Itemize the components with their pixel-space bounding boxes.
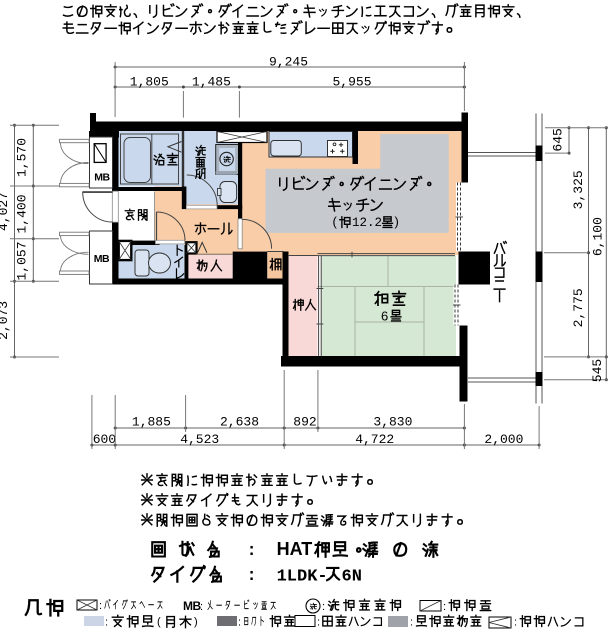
svg-text:1,057: 1,057 bbox=[15, 241, 30, 280]
svg-text:1,485: 1,485 bbox=[192, 75, 231, 90]
svg-text:12.2: 12.2 bbox=[352, 216, 382, 230]
svg-text::: : bbox=[317, 617, 320, 629]
svg-text:4,027: 4,027 bbox=[0, 192, 11, 231]
svg-text::: : bbox=[247, 542, 257, 561]
svg-text:6N: 6N bbox=[342, 568, 362, 587]
svg-text:1,885: 1,885 bbox=[132, 415, 171, 430]
svg-text:2,073: 2,073 bbox=[0, 301, 11, 340]
svg-text::: : bbox=[410, 617, 413, 629]
svg-text:645: 645 bbox=[551, 128, 566, 151]
svg-text::: : bbox=[247, 567, 257, 586]
svg-text:4,523: 4,523 bbox=[180, 432, 219, 447]
svg-text:1,400: 1,400 bbox=[15, 194, 30, 233]
svg-text:MB: MB bbox=[94, 253, 110, 265]
svg-text:5,955: 5,955 bbox=[332, 75, 371, 90]
svg-text:6: 6 bbox=[381, 309, 388, 324]
svg-text:4,722: 4,722 bbox=[355, 432, 394, 447]
svg-text:600: 600 bbox=[93, 432, 116, 447]
svg-text:3,325: 3,325 bbox=[571, 170, 586, 209]
svg-text:6,100: 6,100 bbox=[591, 217, 606, 256]
svg-text:2,638: 2,638 bbox=[220, 415, 259, 430]
svg-text:MB: MB bbox=[183, 599, 201, 613]
svg-text::: : bbox=[322, 601, 325, 613]
svg-text:HAT: HAT bbox=[277, 539, 313, 559]
svg-text:1LDK-: 1LDK- bbox=[277, 568, 328, 587]
svg-text::: : bbox=[443, 601, 446, 613]
svg-text:3,830: 3,830 bbox=[373, 415, 412, 430]
svg-text:(: ( bbox=[333, 214, 338, 229]
svg-text:545: 545 bbox=[590, 359, 605, 382]
svg-text:(: ( bbox=[157, 616, 161, 628]
svg-text::: : bbox=[99, 600, 102, 612]
svg-text::: : bbox=[514, 617, 517, 629]
svg-text:892: 892 bbox=[293, 415, 316, 430]
svg-text:1,570: 1,570 bbox=[15, 138, 30, 177]
svg-text:2,000: 2,000 bbox=[484, 432, 523, 447]
svg-text:1,805: 1,805 bbox=[130, 75, 169, 90]
svg-text:9,245: 9,245 bbox=[269, 55, 308, 70]
svg-text:): ) bbox=[194, 616, 198, 628]
svg-text:MB: MB bbox=[94, 172, 110, 184]
svg-text::: : bbox=[105, 617, 108, 629]
svg-text:2,775: 2,775 bbox=[571, 288, 586, 327]
svg-text:): ) bbox=[395, 214, 399, 229]
svg-text::: : bbox=[238, 617, 241, 629]
svg-text::: : bbox=[200, 601, 203, 613]
